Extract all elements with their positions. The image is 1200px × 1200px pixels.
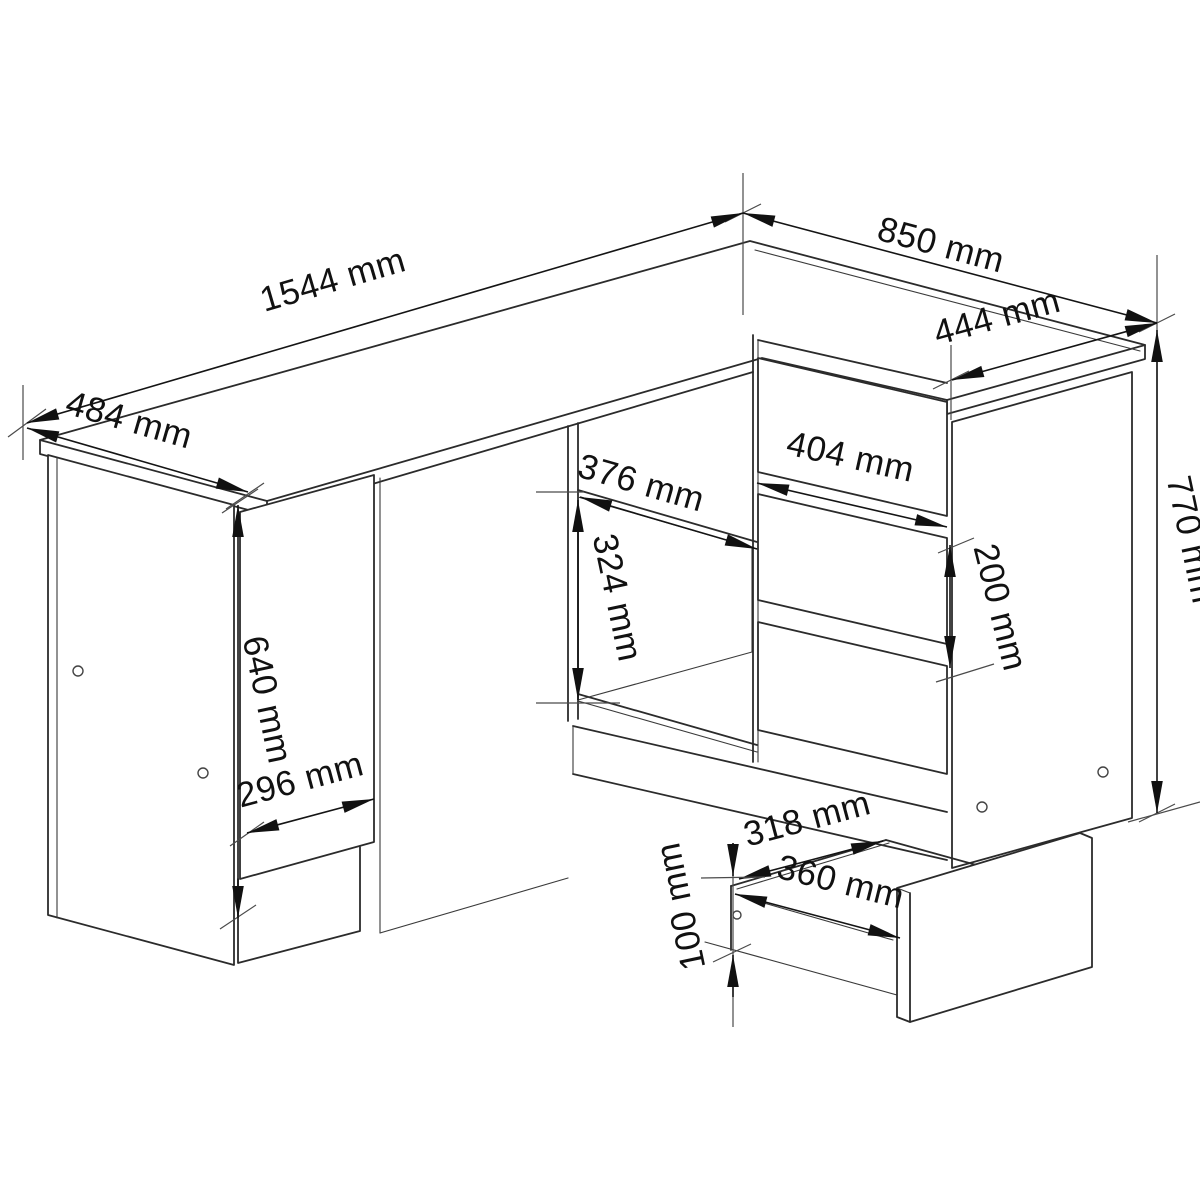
label-desk-length: 1544 mm [256,240,410,319]
left-side-panel [48,455,234,965]
label-drawer-inner-width: 318 mm [739,783,874,854]
label-compartment-height: 324 mm [585,530,650,665]
dim-100 [701,843,765,1027]
divider-panel [568,423,578,721]
drawer-3 [758,622,947,774]
label-total-height: 770 mm [1159,472,1200,607]
drawer-front-panel [897,833,1092,1022]
label-right-wing-depth: 850 mm [873,209,1008,280]
technical-drawing-page: 1544 mm 850 mm 444 mm 484 mm 770 mm 404 … [0,0,1200,1200]
drawer-2 [758,494,947,644]
pulled-out-drawer [705,833,1092,1022]
right-side-panel [952,372,1132,868]
corner-desk-diagram: 1544 mm 850 mm 444 mm 484 mm 770 mm 404 … [0,0,1200,1200]
label-drawer-inner-height: 100 mm [648,839,713,974]
drawer-unit [753,340,947,774]
cam-hole [733,911,741,919]
